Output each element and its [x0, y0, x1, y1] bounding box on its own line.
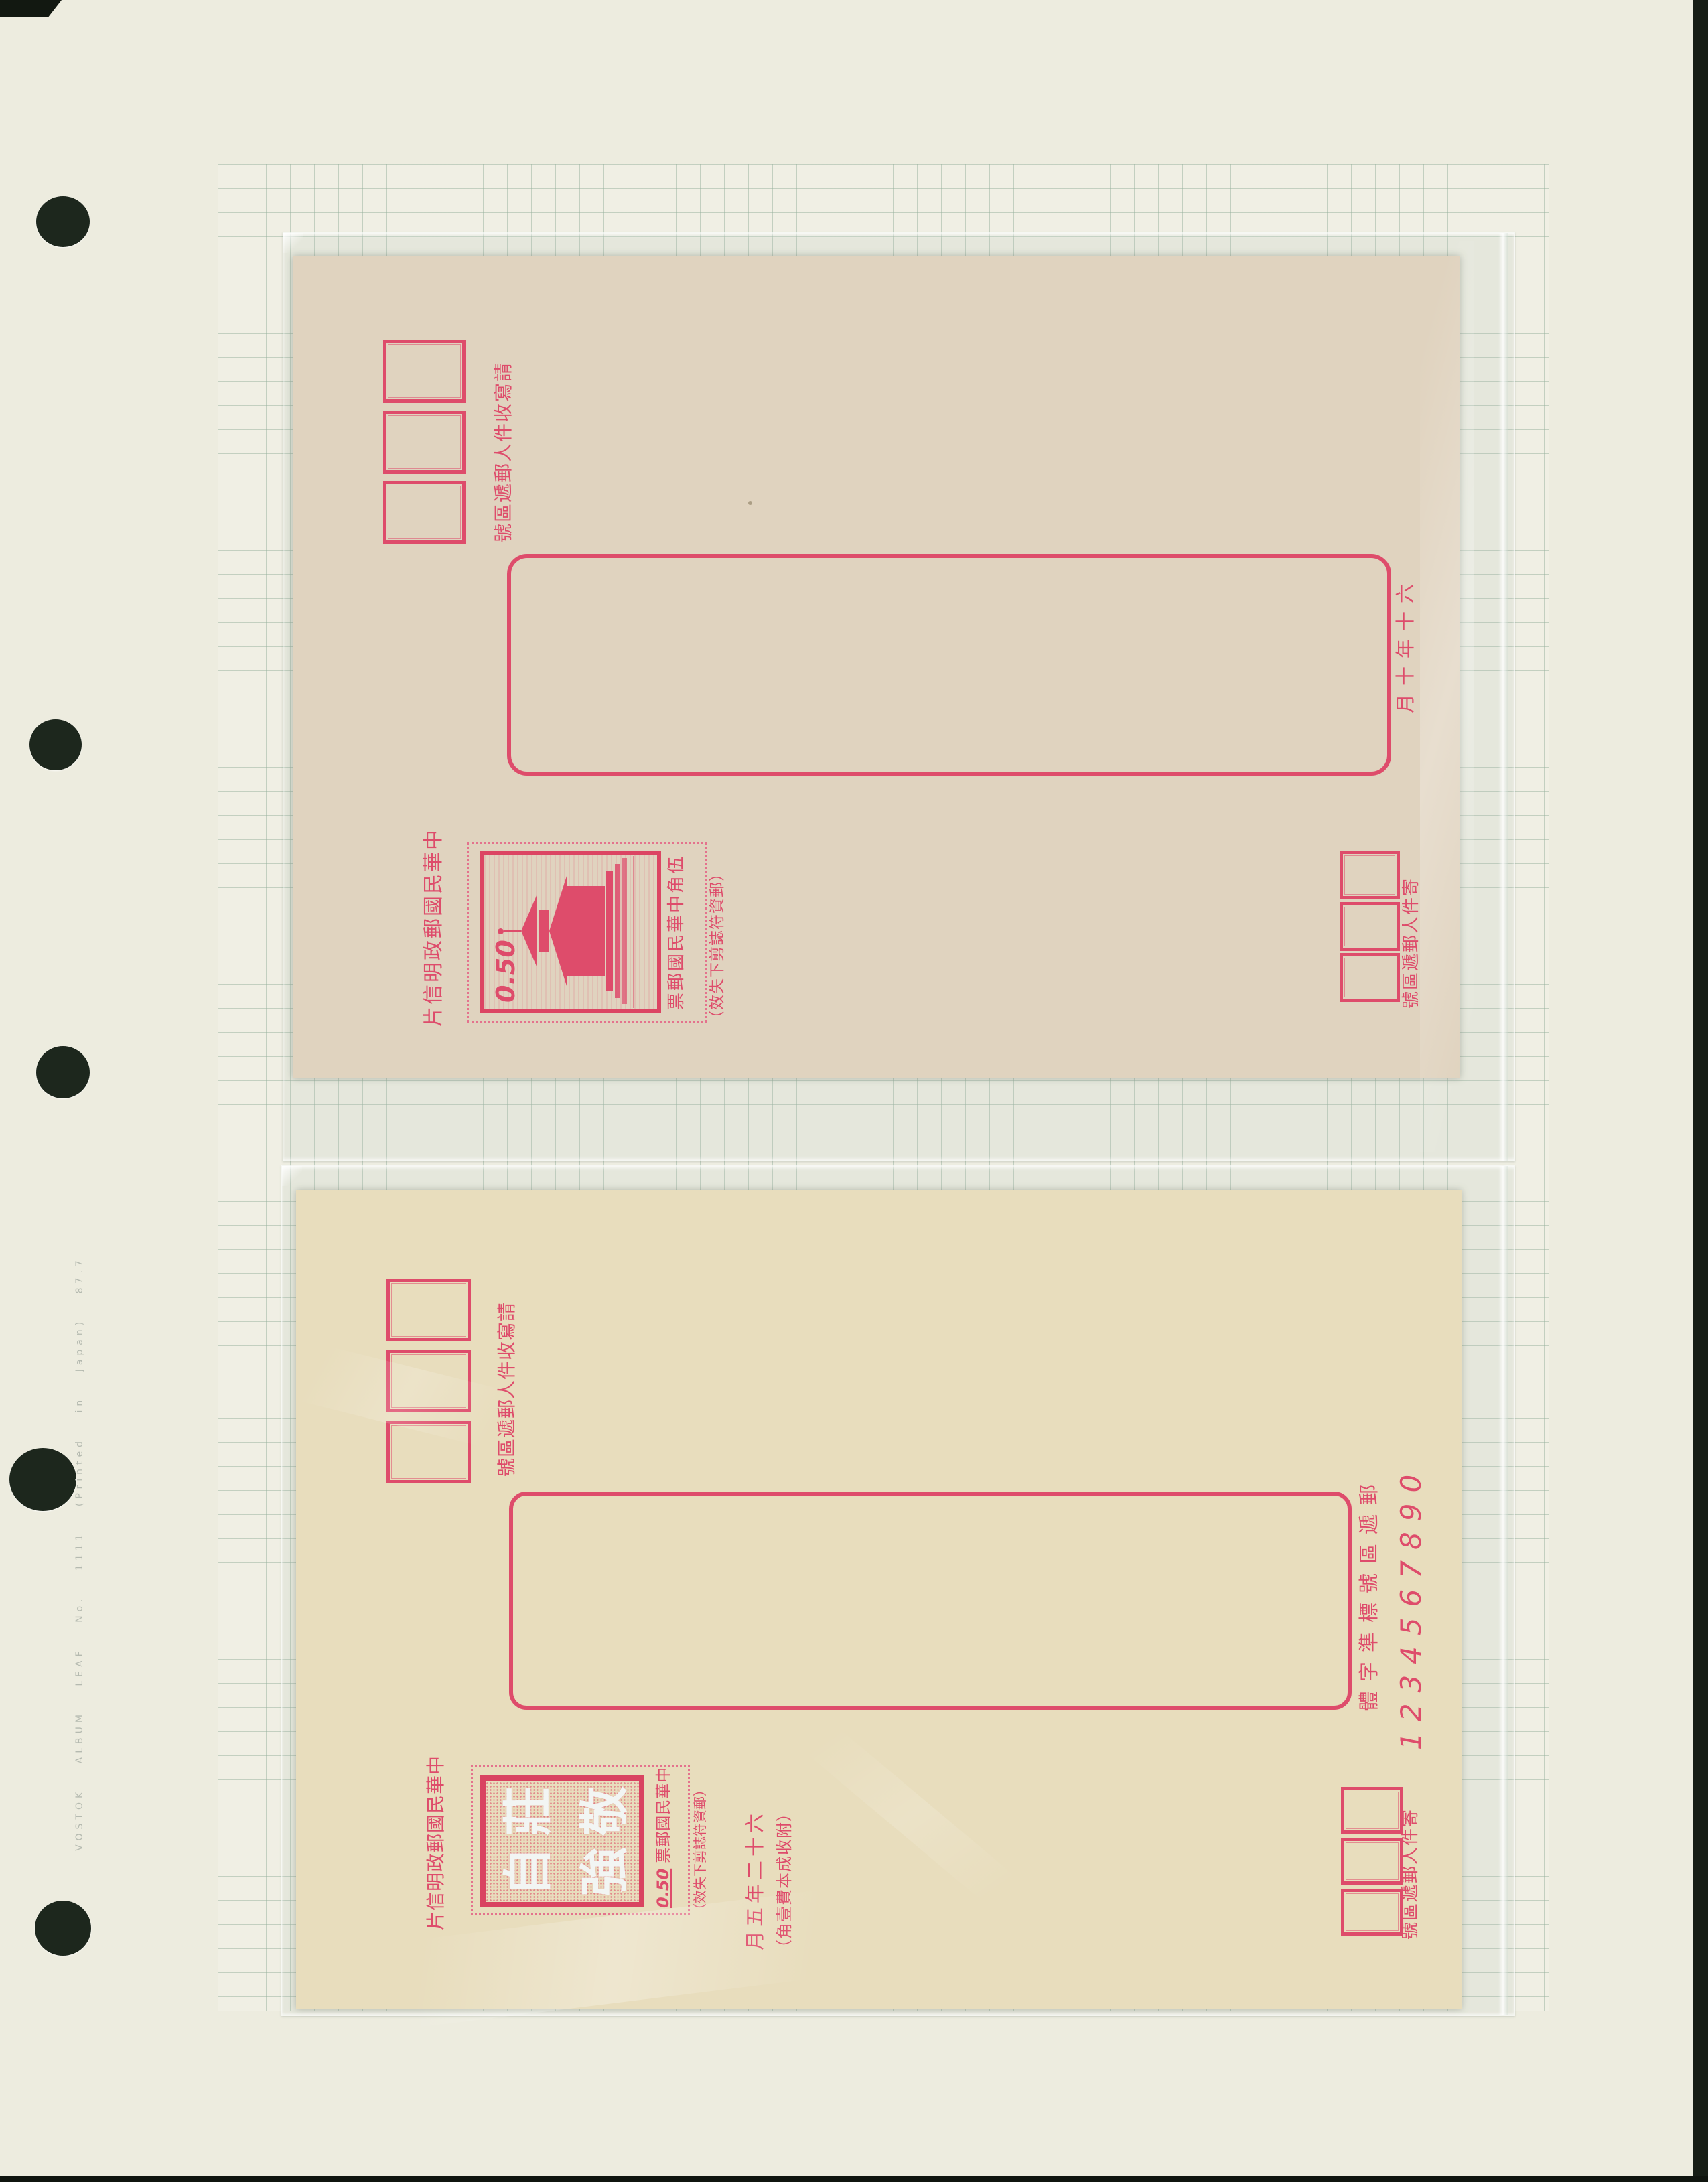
stamp-char: 敬 — [563, 1781, 640, 1842]
card-title: 片信明政郵國民華中 — [426, 1752, 447, 1930]
leaf-caption: VOSTOK ALBUM LEAF No. 1111 (Printed in J… — [70, 1206, 90, 1902]
punch-hole — [36, 196, 90, 247]
stamp-char: 莊 — [486, 1781, 563, 1842]
postal-code-box — [383, 340, 466, 403]
code-font-digits: 1234567890 — [1395, 1455, 1427, 1750]
postal-code-box — [1340, 851, 1400, 899]
punch-hole — [36, 1046, 90, 1098]
imprinted-stamp: 自 莊 強 敬 0.50 票郵國民華中 — [471, 1765, 690, 1915]
stamp-value: 0.50 — [654, 1869, 672, 1908]
stamp-char: 自 — [486, 1842, 563, 1903]
postal-code-box — [386, 1279, 471, 1341]
cutout-note: （效失下剪誌符資郵） — [693, 1767, 707, 1917]
punch-hole — [35, 1901, 91, 1956]
address-box — [507, 554, 1391, 776]
postal-code-box — [1340, 902, 1400, 951]
address-box — [509, 1492, 1352, 1710]
sender-code-note: 號區遞郵人件寄 — [1402, 853, 1421, 1009]
leaf-caption-text: VOSTOK ALBUM LEAF No. 1111 (Printed in J… — [74, 1256, 85, 1851]
page-corner-shadow — [0, 0, 62, 17]
imprinted-stamp: 0.50 票郵國民華中角伍 — [467, 842, 707, 1023]
recipient-code-note: 號區遞郵人件收寫請 — [494, 347, 514, 542]
postal-code-box — [1341, 1787, 1403, 1834]
paper-speck — [748, 501, 752, 505]
page-edge-bottom — [0, 2176, 1708, 2182]
stamp-inscription: 票郵國民華中 — [656, 1767, 672, 1863]
stamp-char: 強 — [563, 1842, 640, 1903]
page-edge-right — [1693, 0, 1708, 2182]
postal-code-box — [383, 481, 466, 544]
recipient-code-note: 號區遞郵人件收寫請 — [497, 1285, 518, 1477]
fee-note: （角壹費本成收附） — [776, 1777, 793, 1956]
card-title: 片信明政郵國民華中 — [423, 822, 445, 1027]
stamp-inscription: 票郵國民華中角伍 — [667, 848, 687, 1017]
postal-code-box — [386, 1421, 471, 1483]
postal-code-box — [1341, 1838, 1403, 1885]
punch-hole — [29, 719, 82, 770]
issue-date: 月十年十六 — [1395, 569, 1417, 713]
punch-hole — [9, 1448, 76, 1511]
sender-code-note: 號區遞郵人件寄 — [1401, 1784, 1421, 1940]
postal-code-box — [386, 1350, 471, 1412]
code-font-label: 體字準標號區遞郵 — [1358, 1459, 1380, 1711]
postal-card-bottom: 片信明政郵國民華中 自 莊 強 敬 0.50 票郵國民華中 （效失下剪誌符資郵）… — [296, 1190, 1462, 2009]
postal-code-box — [1340, 953, 1400, 1002]
postal-code-box — [383, 411, 466, 474]
postal-card-top: 片信明政郵國民華中 0.50 票郵國民華中角伍 — [293, 256, 1460, 1078]
stamp-design-frame: 0.50 — [480, 851, 661, 1013]
issue-date: 月五年二十六 — [745, 1796, 766, 1950]
stamp-design-frame: 自 莊 強 敬 — [480, 1775, 644, 1907]
album-page: VOSTOK ALBUM LEAF No. 1111 (Printed in J… — [0, 0, 1708, 2182]
cutout-note: （效失下剪誌符資郵） — [709, 840, 726, 1026]
postal-code-box — [1341, 1889, 1403, 1936]
stamp-value: 0.50 — [491, 940, 520, 1003]
